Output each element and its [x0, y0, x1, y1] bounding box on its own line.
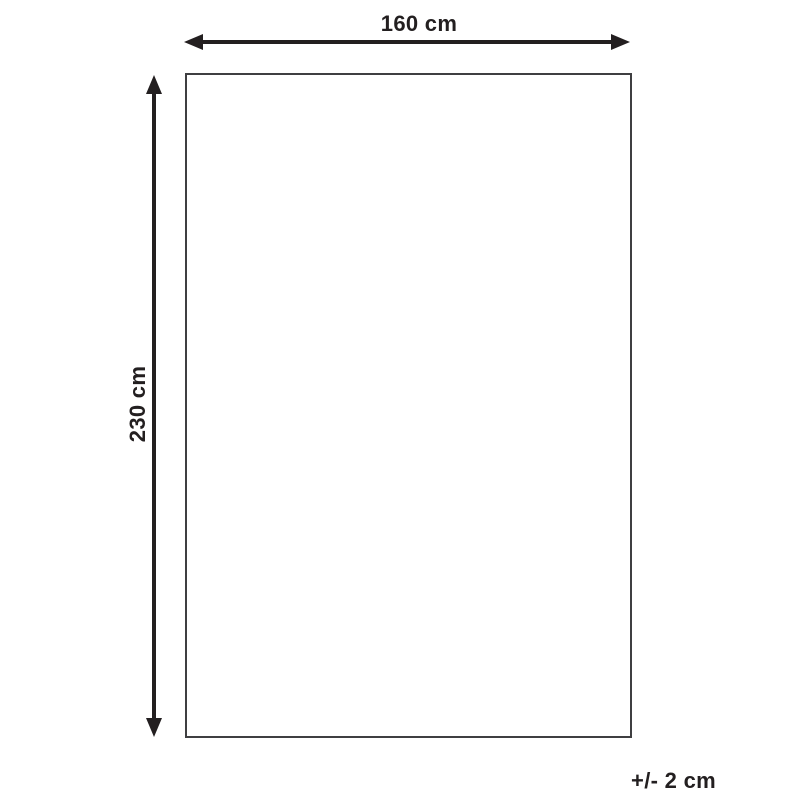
arrowhead-right-icon: [611, 34, 630, 50]
horizontal-dimension-arrow: [184, 34, 630, 50]
tolerance-label: +/- 2 cm: [631, 770, 716, 792]
arrowhead-left-icon: [184, 34, 203, 50]
arrowhead-up-icon: [146, 75, 162, 94]
height-dimension-label: 230 cm: [127, 366, 149, 442]
dimension-arrows: [0, 0, 800, 800]
arrowhead-down-icon: [146, 718, 162, 737]
width-dimension-label: 160 cm: [381, 13, 457, 35]
dimension-diagram: 160 cm 230 cm +/- 2 cm: [0, 0, 800, 800]
